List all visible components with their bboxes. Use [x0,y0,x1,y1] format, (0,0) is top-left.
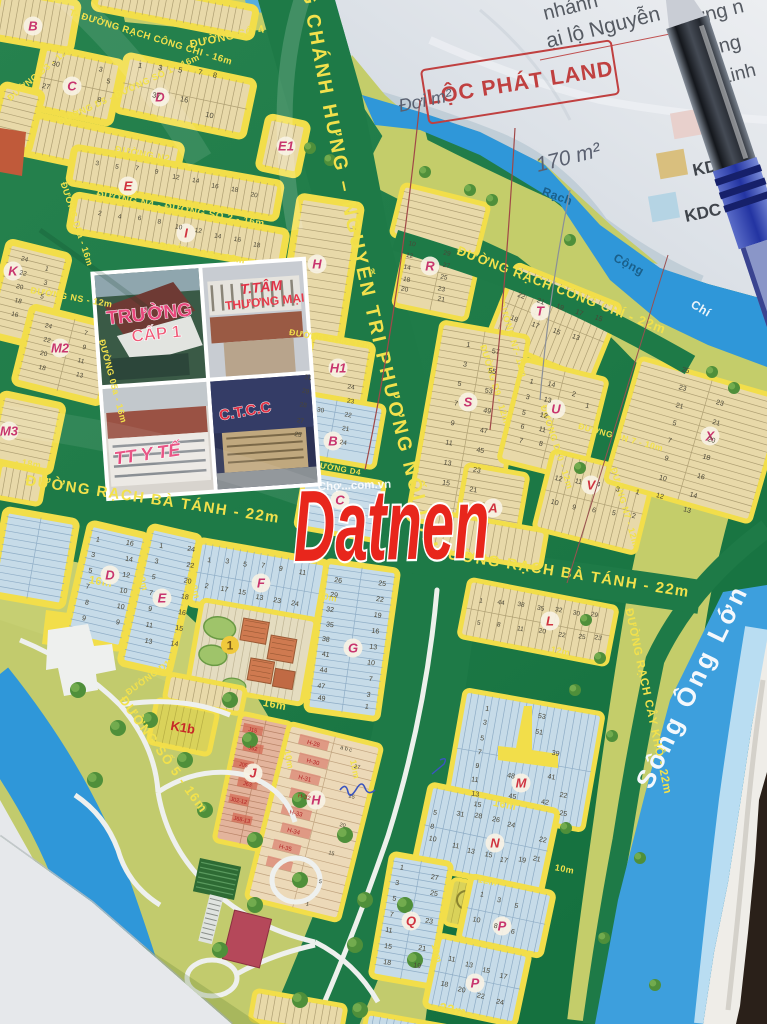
svg-text:35: 35 [325,621,334,629]
svg-text:11: 11 [447,956,456,964]
svg-text:47: 47 [479,427,488,435]
svg-text:23: 23 [273,597,282,605]
svg-text:18: 18 [180,593,189,601]
svg-text:18: 18 [383,959,392,967]
svg-text:41: 41 [547,773,556,781]
svg-text:25: 25 [559,810,568,818]
svg-text:C: C [67,79,77,94]
svg-text:38: 38 [321,636,330,644]
svg-text:53: 53 [484,387,493,395]
svg-text:14: 14 [170,640,179,648]
svg-text:29: 29 [330,592,339,600]
svg-text:S: S [464,395,473,410]
svg-text:1: 1 [227,639,234,653]
svg-text:53: 53 [537,713,546,721]
svg-text:22: 22 [186,562,195,570]
svg-text:45: 45 [476,447,485,455]
svg-text:J: J [249,766,257,781]
svg-text:D: D [105,568,115,583]
svg-text:19: 19 [413,962,422,970]
svg-text:15: 15 [473,801,482,809]
svg-text:11: 11 [385,927,393,935]
svg-text:49: 49 [317,695,326,703]
svg-text:22: 22 [559,792,568,800]
svg-text:45: 45 [508,793,517,801]
svg-text:48: 48 [506,772,515,780]
svg-text:14: 14 [124,556,133,564]
svg-text:M: M [516,776,528,791]
svg-text:16: 16 [177,609,186,617]
svg-text:41: 41 [321,651,330,659]
svg-text:M3: M3 [0,424,19,439]
svg-text:K: K [8,264,19,279]
svg-text:10: 10 [116,603,125,611]
svg-text:16: 16 [371,628,380,636]
svg-text:49: 49 [483,407,492,415]
svg-text:P: P [498,919,507,934]
svg-text:G: G [348,641,358,656]
svg-text:13: 13 [255,594,264,602]
svg-text:51: 51 [535,729,544,737]
svg-text:15: 15 [175,625,184,633]
svg-text:B: B [328,434,337,449]
svg-text:55: 55 [488,368,497,376]
svg-text:N: N [490,836,500,851]
svg-text:E: E [158,591,167,606]
svg-text:P: P [471,976,480,991]
svg-text:10: 10 [119,587,128,595]
svg-text:11: 11 [145,622,153,630]
svg-text:24: 24 [187,546,196,554]
svg-text:13: 13 [369,644,378,652]
svg-text:13: 13 [144,638,153,646]
svg-text:10: 10 [367,659,376,667]
svg-text:13: 13 [443,459,452,467]
svg-text:U: U [551,402,561,417]
svg-text:11: 11 [471,776,479,784]
svg-text:44: 44 [319,667,328,675]
svg-text:R: R [425,259,435,274]
svg-text:27: 27 [430,874,439,882]
svg-text:20: 20 [183,577,192,585]
svg-text:15: 15 [384,943,393,951]
svg-text:16: 16 [125,540,134,548]
svg-text:11: 11 [451,842,460,850]
svg-text:T: T [536,304,545,319]
svg-text:23: 23 [425,918,434,926]
svg-text:32: 32 [326,606,335,614]
svg-text:E1: E1 [278,139,294,154]
svg-text:39: 39 [551,750,560,758]
svg-text:M2: M2 [51,341,70,356]
svg-text:25: 25 [429,890,438,898]
svg-text:F: F [257,576,266,591]
svg-text:I: I [184,226,188,241]
svg-text:47: 47 [317,683,326,691]
svg-text:H: H [312,257,322,272]
svg-text:11: 11 [445,439,453,447]
svg-text:15: 15 [238,589,247,597]
svg-text:42: 42 [540,799,549,807]
svg-text:19: 19 [373,612,382,620]
svg-text:Q: Q [406,914,416,929]
svg-text:21: 21 [418,945,427,953]
svg-text:H: H [311,793,321,808]
svg-text:17: 17 [220,586,229,594]
svg-text:24: 24 [290,600,299,608]
svg-text:Datnen: Datnen [292,468,490,583]
svg-text:L: L [546,614,554,629]
svg-text:H1: H1 [330,361,347,376]
svg-text:13: 13 [471,790,480,798]
svg-text:E: E [124,179,133,194]
svg-text:12: 12 [122,571,131,579]
svg-text:B: B [28,19,37,34]
svg-text:22: 22 [375,596,384,604]
